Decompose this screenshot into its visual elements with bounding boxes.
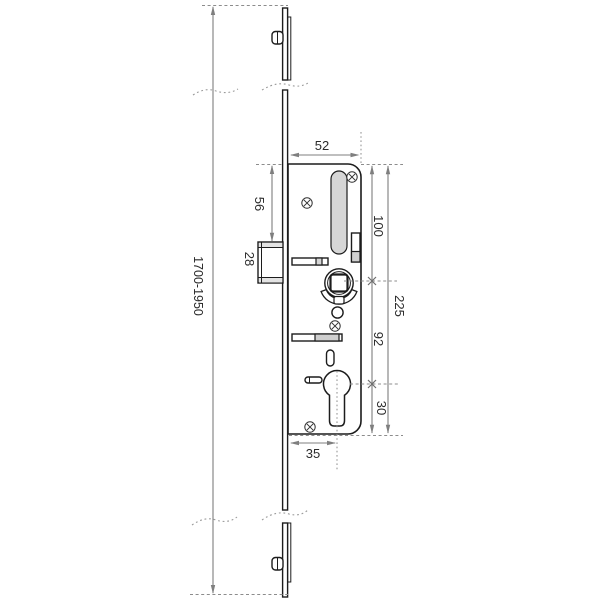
- arrow-up: [270, 165, 274, 174]
- arrow-down: [211, 585, 215, 594]
- pill-body: [305, 377, 322, 383]
- oval-cutout: [327, 350, 335, 366]
- screw-hole-icon: [302, 198, 312, 208]
- break-mark: [262, 510, 308, 520]
- faceplate-strip: [288, 523, 291, 582]
- faceplate-rail-middle: [283, 90, 288, 510]
- screw-hole-icon: [330, 321, 340, 331]
- dim-backset-label: 35: [306, 446, 320, 461]
- bar: [292, 258, 328, 265]
- lever-foot: [352, 252, 361, 263]
- arrow-down: [270, 233, 274, 242]
- arrow-right: [327, 441, 336, 445]
- dim-case-length-label: 225: [392, 295, 407, 317]
- faceplate-rail-bottom: [272, 523, 291, 597]
- pin-hole: [332, 307, 343, 318]
- break-mark: [192, 517, 237, 525]
- bar-segment: [316, 258, 322, 265]
- slot-cutout: [331, 171, 347, 254]
- screw-hole-icon: [305, 422, 315, 432]
- lever-detail: [352, 233, 361, 262]
- dim-latch-offset-label: 56: [252, 197, 267, 211]
- arrow-right: [351, 153, 360, 157]
- dim-latch-height-label: 28: [242, 252, 257, 266]
- technical-drawing: 1700-1950 52 56 28 100 225 92 30 35: [0, 0, 600, 600]
- arrow-down: [370, 425, 374, 434]
- arrow-up: [386, 165, 390, 174]
- latch-tail-bar: [292, 258, 328, 265]
- dim-overall-height-label: 1700-1950: [191, 256, 205, 316]
- arrow-up: [211, 6, 215, 15]
- latch-bevel-top: [259, 243, 282, 248]
- arrow-left: [290, 441, 299, 445]
- arrow-left: [290, 153, 299, 157]
- pill-cutout: [305, 377, 322, 383]
- deadbolt-head: [315, 334, 339, 341]
- dim-centres-label: 92: [371, 332, 386, 346]
- latch-bolt: [258, 242, 283, 283]
- square-spindle-hole: [331, 275, 348, 292]
- dim-case-depth-label: 52: [315, 138, 329, 153]
- faceplate-strip: [288, 17, 291, 80]
- follower-tab: [334, 297, 344, 305]
- break-mark: [262, 83, 308, 90]
- arrow-down: [386, 425, 390, 434]
- screw-hole-icon: [347, 172, 357, 182]
- arrow-up: [370, 165, 374, 174]
- dim-cylinder-bottom-label: 30: [374, 401, 389, 415]
- faceplate-rail-top: [272, 8, 291, 80]
- deadbolt-bar: [292, 334, 342, 341]
- dim-follower-label: 100: [371, 215, 386, 237]
- faceplate-plate: [283, 8, 288, 80]
- latch-bevel-bottom: [259, 278, 282, 283]
- break-mark: [193, 89, 238, 95]
- lock-diagram-canvas: 1700-1950 52 56 28 100 225 92 30 35: [0, 0, 600, 600]
